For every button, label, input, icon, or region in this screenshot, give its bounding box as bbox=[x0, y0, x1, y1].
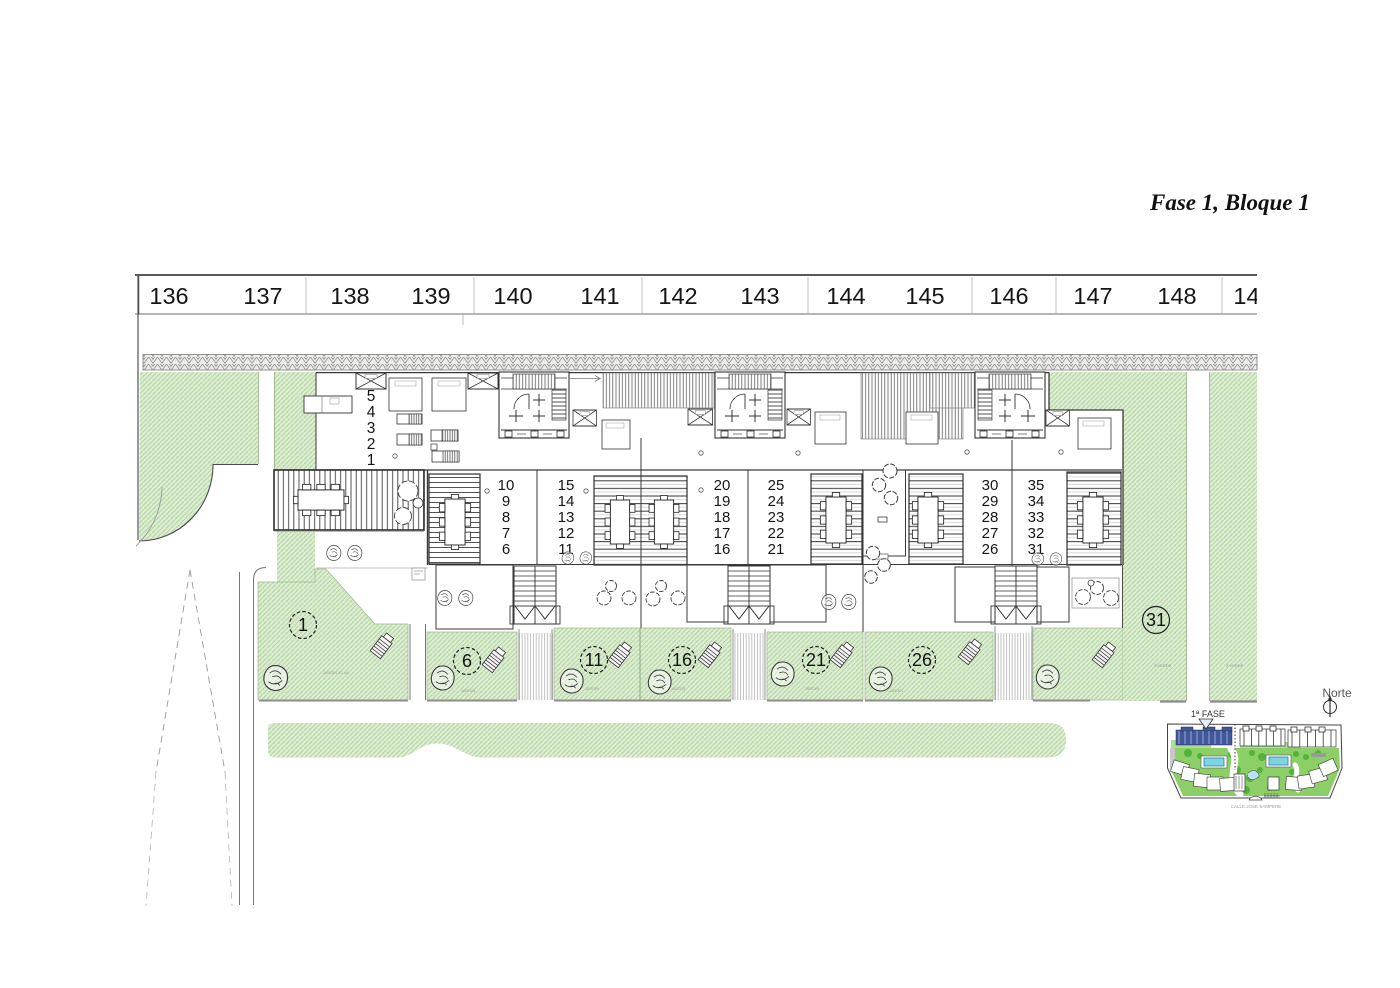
svg-text:17: 17 bbox=[714, 525, 731, 542]
svg-text:141: 141 bbox=[580, 283, 619, 309]
svg-text:27: 27 bbox=[982, 525, 999, 542]
svg-text:21: 21 bbox=[768, 541, 785, 558]
svg-text:3: 3 bbox=[367, 420, 376, 437]
svg-text:136: 136 bbox=[149, 283, 188, 309]
svg-text:33: 33 bbox=[1028, 509, 1045, 526]
svg-text:CALLE JOSE SAMPERE: CALLE JOSE SAMPERE bbox=[1231, 804, 1282, 809]
svg-text:1: 1 bbox=[367, 452, 376, 469]
svg-text:16: 16 bbox=[672, 650, 692, 670]
svg-text:JARDIN: JARDIN bbox=[889, 688, 904, 693]
svg-text:Z.VERDE: Z.VERDE bbox=[1154, 663, 1172, 668]
svg-text:34: 34 bbox=[1028, 493, 1045, 510]
svg-text:139: 139 bbox=[411, 283, 450, 309]
svg-text:22: 22 bbox=[768, 525, 785, 542]
svg-text:4: 4 bbox=[367, 404, 376, 421]
svg-text:1ª FASE: 1ª FASE bbox=[1191, 709, 1225, 719]
svg-text:JARDIN: JARDIN bbox=[671, 686, 686, 691]
svg-text:Fase 1, Bloque 1: Fase 1, Bloque 1 bbox=[1149, 190, 1310, 215]
svg-text:143: 143 bbox=[740, 283, 779, 309]
svg-text:Z.VERDE: Z.VERDE bbox=[1226, 663, 1244, 668]
svg-text:Norte: Norte bbox=[1322, 686, 1352, 700]
svg-text:24: 24 bbox=[768, 493, 785, 510]
svg-text:JARDIN: JARDIN bbox=[585, 686, 600, 691]
svg-text:145: 145 bbox=[905, 283, 944, 309]
svg-text:7: 7 bbox=[502, 525, 510, 542]
svg-text:31: 31 bbox=[1146, 610, 1166, 630]
svg-text:147: 147 bbox=[1073, 283, 1112, 309]
svg-text:21: 21 bbox=[806, 650, 826, 670]
svg-text:20: 20 bbox=[714, 477, 731, 494]
svg-text:35: 35 bbox=[1028, 477, 1045, 494]
svg-text:5: 5 bbox=[367, 388, 376, 405]
svg-text:13: 13 bbox=[558, 509, 575, 526]
svg-text:12: 12 bbox=[558, 525, 575, 542]
svg-text:JARDIN: JARDIN bbox=[461, 688, 476, 693]
svg-text:8: 8 bbox=[502, 509, 510, 526]
svg-text:6: 6 bbox=[462, 651, 472, 671]
svg-text:JARDIN: JARDIN bbox=[805, 686, 820, 691]
svg-text:14: 14 bbox=[558, 493, 575, 510]
svg-text:9: 9 bbox=[502, 493, 510, 510]
svg-text:15: 15 bbox=[558, 477, 575, 494]
svg-text:146: 146 bbox=[989, 283, 1028, 309]
svg-text:140: 140 bbox=[493, 283, 532, 309]
svg-text:142: 142 bbox=[658, 283, 697, 309]
svg-text:26: 26 bbox=[912, 650, 932, 670]
svg-text:16: 16 bbox=[714, 541, 731, 558]
svg-text:6: 6 bbox=[502, 541, 510, 558]
svg-text:30: 30 bbox=[982, 477, 999, 494]
svg-text:137: 137 bbox=[243, 283, 282, 309]
svg-text:JARDIN 62 m2: JARDIN 62 m2 bbox=[323, 670, 350, 675]
svg-text:19: 19 bbox=[714, 493, 731, 510]
svg-text:144: 144 bbox=[826, 283, 865, 309]
svg-text:18: 18 bbox=[714, 509, 731, 526]
svg-text:25: 25 bbox=[768, 477, 785, 494]
svg-text:138: 138 bbox=[330, 283, 369, 309]
svg-text:26: 26 bbox=[982, 541, 999, 558]
svg-text:1: 1 bbox=[298, 615, 308, 635]
svg-text:28: 28 bbox=[982, 509, 999, 526]
svg-text:23: 23 bbox=[768, 509, 785, 526]
svg-text:2: 2 bbox=[367, 436, 376, 453]
svg-text:10: 10 bbox=[498, 477, 515, 494]
svg-text:32: 32 bbox=[1028, 525, 1045, 542]
svg-text:11: 11 bbox=[585, 650, 604, 670]
svg-text:29: 29 bbox=[982, 493, 999, 510]
svg-text:148: 148 bbox=[1157, 283, 1196, 309]
